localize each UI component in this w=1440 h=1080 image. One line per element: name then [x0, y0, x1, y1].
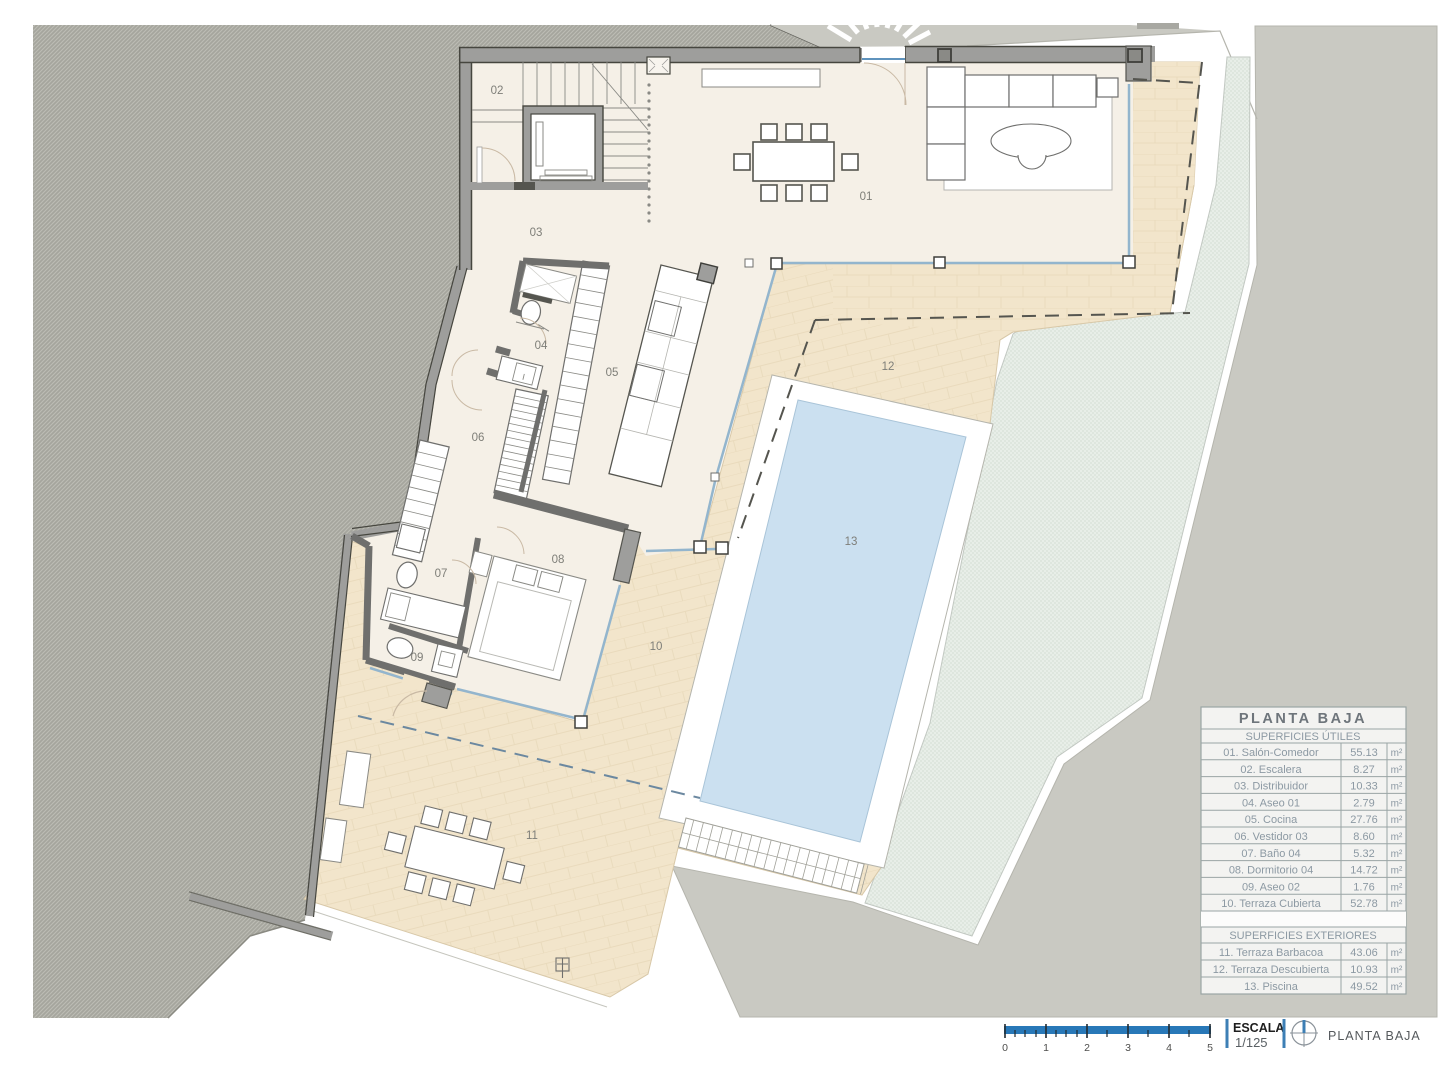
svg-text:10. Terraza Cubierta: 10. Terraza Cubierta [1221, 898, 1321, 910]
svg-text:07: 07 [435, 568, 448, 580]
svg-text:1.76: 1.76 [1353, 881, 1374, 893]
svg-text:m²: m² [1391, 798, 1403, 809]
svg-text:m²: m² [1391, 982, 1403, 993]
svg-text:m²: m² [1391, 882, 1403, 893]
svg-text:08. Dormitorio 04: 08. Dormitorio 04 [1229, 865, 1313, 877]
svg-text:01. Salón-Comedor: 01. Salón-Comedor [1223, 747, 1319, 759]
svg-text:49.52: 49.52 [1350, 981, 1378, 993]
svg-text:m²: m² [1391, 965, 1403, 976]
svg-text:3: 3 [1125, 1042, 1131, 1054]
svg-text:0: 0 [1002, 1042, 1008, 1054]
svg-text:14.72: 14.72 [1350, 865, 1378, 877]
svg-text:04: 04 [535, 340, 548, 352]
svg-text:ESCALA: ESCALA [1233, 1021, 1284, 1035]
svg-text:55.13: 55.13 [1350, 747, 1378, 759]
svg-text:43.06: 43.06 [1350, 947, 1378, 959]
svg-text:06: 06 [472, 432, 485, 444]
svg-text:01: 01 [860, 191, 873, 203]
svg-text:SUPERFICIES ÚTILES: SUPERFICIES ÚTILES [1246, 730, 1361, 743]
svg-text:2: 2 [1084, 1042, 1090, 1054]
svg-text:07. Baño 04: 07. Baño 04 [1241, 848, 1300, 860]
svg-text:m²: m² [1391, 849, 1403, 860]
svg-text:10: 10 [650, 641, 663, 653]
svg-text:2.79: 2.79 [1353, 797, 1374, 809]
svg-text:06. Vestidor 03: 06. Vestidor 03 [1234, 831, 1307, 843]
svg-text:4: 4 [1166, 1042, 1172, 1054]
svg-text:03: 03 [530, 227, 543, 239]
svg-text:PLANTA BAJA: PLANTA BAJA [1239, 711, 1367, 727]
svg-text:05. Cocina: 05. Cocina [1245, 814, 1298, 826]
svg-text:m²: m² [1391, 815, 1403, 826]
svg-text:13: 13 [845, 536, 858, 548]
svg-text:5: 5 [1207, 1042, 1213, 1054]
svg-text:05: 05 [606, 367, 619, 379]
svg-text:08: 08 [552, 554, 565, 566]
svg-text:13. Piscina: 13. Piscina [1244, 981, 1299, 993]
svg-text:m²: m² [1391, 765, 1403, 776]
svg-text:10.93: 10.93 [1350, 964, 1378, 976]
svg-text:m²: m² [1391, 748, 1403, 759]
svg-text:09. Aseo 02: 09. Aseo 02 [1242, 881, 1300, 893]
svg-text:8.27: 8.27 [1353, 764, 1374, 776]
svg-text:27.76: 27.76 [1350, 814, 1378, 826]
svg-text:PLANTA BAJA: PLANTA BAJA [1328, 1029, 1421, 1043]
svg-text:m²: m² [1391, 832, 1403, 843]
svg-text:12: 12 [882, 361, 895, 373]
svg-text:09: 09 [411, 652, 424, 664]
svg-text:SUPERFICIES EXTERIORES: SUPERFICIES EXTERIORES [1229, 930, 1376, 942]
svg-text:m²: m² [1391, 948, 1403, 959]
svg-text:m²: m² [1391, 782, 1403, 793]
svg-text:m²: m² [1391, 899, 1403, 910]
svg-text:02. Escalera: 02. Escalera [1240, 764, 1302, 776]
svg-text:11. Terraza Barbacoa: 11. Terraza Barbacoa [1219, 947, 1324, 959]
svg-text:02: 02 [491, 85, 504, 97]
svg-text:1/125: 1/125 [1235, 1035, 1268, 1050]
svg-text:52.78: 52.78 [1350, 898, 1378, 910]
svg-text:03. Distribuidor: 03. Distribuidor [1234, 781, 1308, 793]
svg-text:m²: m² [1391, 866, 1403, 877]
svg-text:5.32: 5.32 [1353, 848, 1374, 860]
svg-text:10.33: 10.33 [1350, 781, 1378, 793]
svg-text:04. Aseo 01: 04. Aseo 01 [1242, 797, 1300, 809]
svg-text:8.60: 8.60 [1353, 831, 1374, 843]
svg-text:12. Terraza Descubierta: 12. Terraza Descubierta [1213, 964, 1330, 976]
svg-text:11: 11 [526, 830, 538, 842]
svg-text:1: 1 [1043, 1042, 1049, 1054]
